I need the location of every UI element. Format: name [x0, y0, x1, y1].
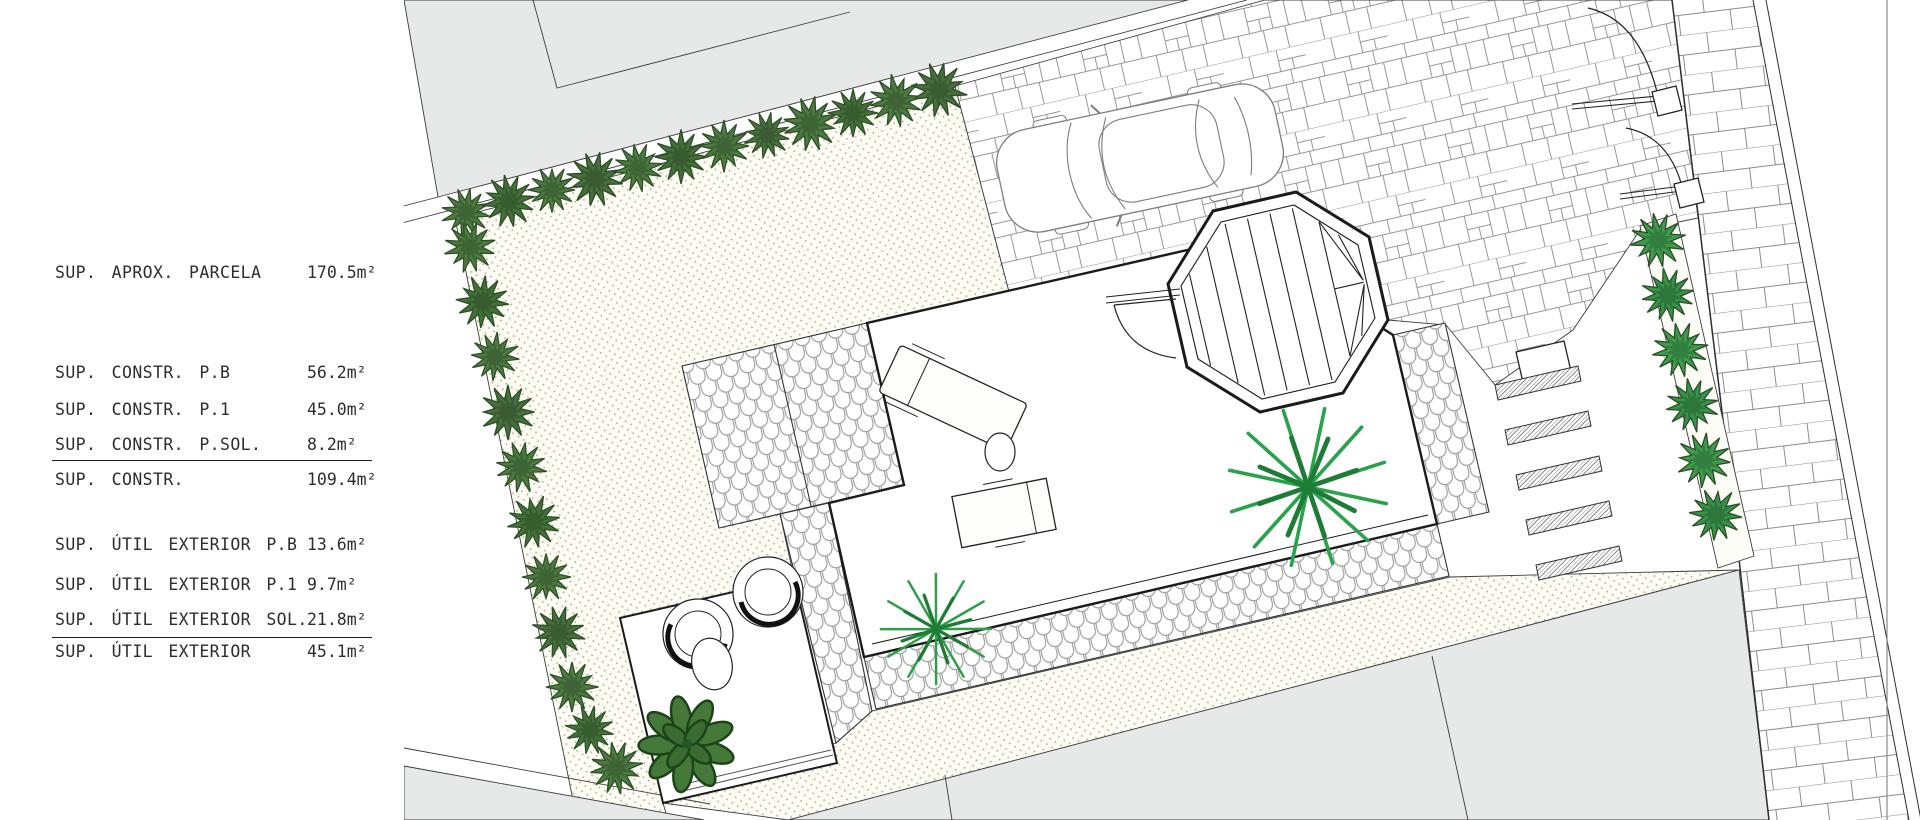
area-label: SUP. ÚTIL EXTERIOR P.1 — [55, 575, 297, 594]
sum-line — [52, 637, 372, 638]
area-row: SUP. CONSTR. P.1 45.0m² — [0, 400, 404, 422]
gate2-pier — [1674, 178, 1704, 208]
area-row: SUP. APROX. PARCELA 170.5m² — [0, 263, 404, 285]
step-bar — [1516, 456, 1602, 490]
area-schedule: SUP. APROX. PARCELA 170.5m² SUP. CONSTR.… — [0, 0, 404, 820]
area-row: SUP. CONSTR. P.B 56.2m² — [0, 363, 404, 385]
area-label: SUP. CONSTR. — [55, 470, 184, 489]
area-row: SUP. ÚTIL EXTERIOR P.B 13.6m² — [0, 535, 404, 557]
area-row: SUP. ÚTIL EXTERIOR P.1 9.7m² — [0, 575, 404, 597]
side-table-round — [985, 433, 1015, 471]
area-value: 21.8m² — [307, 610, 367, 629]
step-bar — [1526, 501, 1612, 535]
area-value: 8.2m² — [307, 435, 357, 454]
area-label: SUP. ÚTIL EXTERIOR — [55, 642, 251, 661]
area-value: 109.4m² — [307, 470, 377, 489]
area-row: SUP. ÚTIL EXTERIOR SOL. 21.8m² — [0, 610, 404, 632]
step-bar — [1505, 411, 1591, 445]
area-value: 13.6m² — [307, 535, 367, 554]
sum-line — [52, 460, 372, 461]
area-row: SUP. CONSTR. 109.4m² — [0, 470, 404, 492]
area-value: 45.1m² — [307, 642, 367, 661]
area-label: SUP. ÚTIL EXTERIOR P.B — [55, 535, 297, 554]
area-value: 9.7m² — [307, 575, 357, 594]
area-value: 45.0m² — [307, 400, 367, 419]
area-value: 56.2m² — [307, 363, 367, 382]
area-label: SUP. CONSTR. P.B — [55, 363, 230, 382]
papasan-chair — [733, 557, 803, 627]
area-label: SUP. CONSTR. P.SOL. — [55, 435, 261, 454]
area-label: SUP. APROX. PARCELA — [55, 263, 261, 282]
exterior-steps — [1495, 366, 1622, 580]
area-row: SUP. ÚTIL EXTERIOR 45.1m² — [0, 642, 404, 664]
area-row: SUP. CONSTR. P.SOL. 8.2m² — [0, 435, 404, 457]
gate1-pier — [1652, 86, 1682, 116]
area-label: SUP. CONSTR. P.1 — [55, 400, 230, 419]
area-label: SUP. ÚTIL EXTERIOR SOL. — [55, 610, 308, 629]
area-value: 170.5m² — [307, 263, 377, 282]
